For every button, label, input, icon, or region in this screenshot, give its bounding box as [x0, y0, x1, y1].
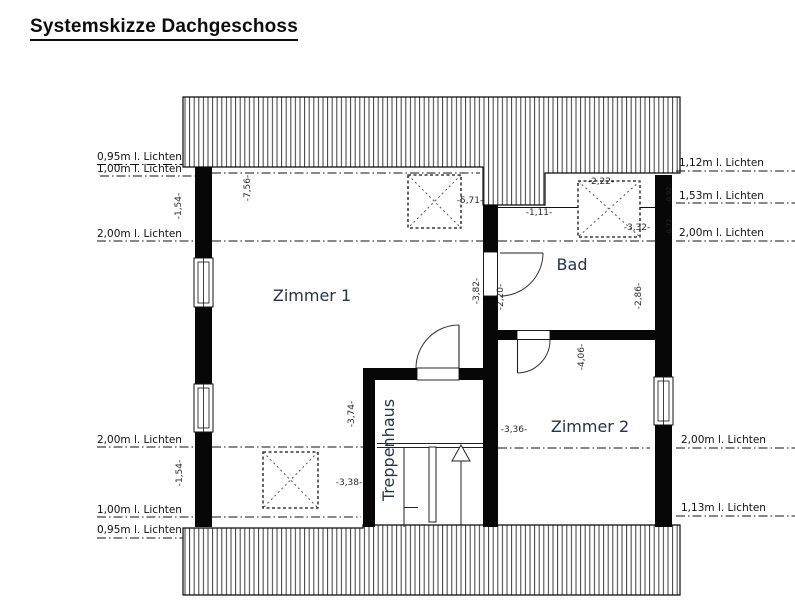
- dim-bad-width: -3,32-: [624, 223, 651, 233]
- dim-zimmer1-width-top: -7,56-: [243, 175, 253, 202]
- dim-bad-depth-right: -2,86-: [634, 283, 644, 310]
- dim-wall-right-upper: -0,92-: [665, 184, 673, 204]
- label-right-200-top: 2,00m l. Lichten: [679, 227, 764, 239]
- label-left-095-top: 0,95m l. Lichten: [97, 151, 182, 163]
- label-right-200-bottom: 2,00m l. Lichten: [681, 434, 766, 446]
- label-left-200-bottom: 2,00m l. Lichten: [97, 434, 182, 446]
- roof-window-3: [263, 452, 318, 508]
- label-left-100-bottom: 1,00m l. Lichten: [97, 504, 182, 516]
- window-left-upper: [194, 258, 213, 307]
- dim-treppenhaus-depth: -3,74-: [347, 401, 357, 428]
- dim-zimmer2-depth: -4,06-: [577, 344, 587, 371]
- label-left-095-bottom: 0,95m l. Lichten: [97, 524, 182, 536]
- clearance-labels-left: 0,95m l. Lichten 1,00m l. Lichten 2,00m …: [97, 151, 182, 536]
- dim-rooflight2-width: -2,22-: [588, 177, 615, 187]
- dim-rooflight3-width: -3,38-: [336, 478, 363, 488]
- door-bad: [484, 252, 544, 296]
- roof-bottom-hatch: [183, 525, 680, 595]
- dim-zimmer2-width: -3,36-: [501, 425, 528, 435]
- dim-knee-left-top: -1,54-: [174, 193, 184, 220]
- dim-rooflight1-offset: -5,71-: [457, 196, 484, 206]
- window-right: [654, 377, 673, 425]
- label-right-113: 1,13m l. Lichten: [681, 502, 766, 514]
- room-label-treppenhaus: Treppenhaus: [379, 399, 398, 502]
- clearance-labels-right: 1,12m l. Lichten 1,53m l. Lichten 2,00m …: [679, 157, 766, 514]
- label-left-200-top: 2,00m l. Lichten: [97, 228, 182, 240]
- roof-window-1: [408, 175, 461, 228]
- label-right-153: 1,53m l. Lichten: [679, 190, 764, 202]
- roof-windows: [263, 175, 640, 508]
- room-label-zimmer1: Zimmer 1: [273, 286, 351, 305]
- room-label-zimmer2: Zimmer 2: [551, 417, 629, 436]
- floor-plan-drawing: 0,95m l. Lichten 1,00m l. Lichten 2,00m …: [0, 0, 795, 605]
- door-zimmer1-treppenhaus: [416, 325, 459, 380]
- roof-top-hatch: [183, 97, 680, 205]
- window-left-lower: [194, 384, 213, 432]
- dim-bad-door-wall: -2,20-: [496, 284, 506, 311]
- label-left-100-top: 1,00m l. Lichten: [97, 163, 182, 175]
- windows: [194, 258, 673, 432]
- wall-treppenhaus-left: [363, 368, 375, 527]
- door-zimmer2: [517, 331, 550, 374]
- floor-plan-page: Systemskizze Dachgeschoss: [0, 0, 795, 605]
- dim-wall-right-lower: -0,72-: [665, 216, 673, 236]
- dim-knee-left-bottom: -1,54-: [175, 460, 185, 487]
- room-label-bad: Bad: [557, 255, 588, 274]
- label-right-112: 1,12m l. Lichten: [679, 157, 764, 169]
- dim-bad-recess: -1,11-: [526, 208, 553, 218]
- wall-left: [195, 167, 212, 527]
- dim-zimmer1-depth-right: -3,82-: [472, 278, 482, 305]
